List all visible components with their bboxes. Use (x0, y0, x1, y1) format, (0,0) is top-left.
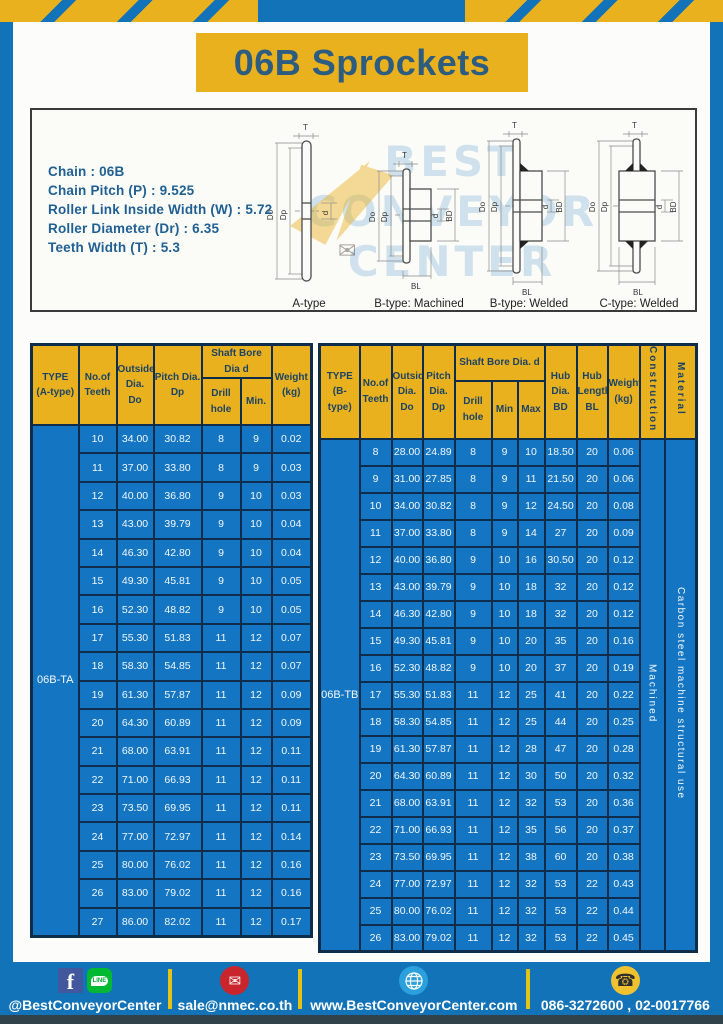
col-header-pitch-dia: Pitch Dia. Dp (154, 345, 202, 426)
c-type-welded-drawing: T Do Dp d BD BL (585, 121, 693, 297)
cell: 32 (518, 898, 545, 925)
col-header-weight: Weight (kg) (608, 345, 640, 439)
spec-line: Roller Diameter (Dr) : 6.35 (48, 219, 272, 238)
cell: 9 (202, 539, 241, 567)
cell: 0.36 (608, 790, 640, 817)
cell: 10 (241, 539, 272, 567)
cell: 11 (455, 709, 492, 736)
cell: 0.16 (608, 628, 640, 655)
cell: 46.30 (117, 539, 154, 567)
cell: 25 (518, 709, 545, 736)
globe-icon (399, 966, 428, 995)
cell: 9 (241, 425, 272, 453)
diagram-b-type-welded: T Do Dp d BD BL B-type: Welded (474, 116, 584, 310)
cell: 0.03 (272, 482, 312, 510)
cell: 44 (545, 709, 577, 736)
cell: 10 (492, 628, 518, 655)
cell: 0.14 (272, 822, 312, 850)
cell: 11 (202, 794, 241, 822)
cell: 60.89 (154, 709, 202, 737)
email-icon: ✉ (220, 966, 249, 995)
cell: 0.28 (608, 736, 640, 763)
cell: 11 (518, 466, 545, 493)
col-header-drill-hole: Drill hole (455, 381, 492, 439)
cell: 21 (360, 790, 392, 817)
cell: 32 (518, 871, 545, 898)
col-header-hub-length: Hub Length BL (577, 345, 608, 439)
cell: 10 (79, 425, 117, 453)
cell: 64.30 (392, 763, 423, 790)
cell: 8 (455, 439, 492, 466)
cell: 21 (79, 737, 117, 765)
cell: 9 (492, 466, 518, 493)
b-type-machined-drawing: T Do Dp d BD BL (365, 121, 473, 297)
cell: 15 (360, 628, 392, 655)
cell: 0.12 (608, 574, 640, 601)
cell: 12 (492, 709, 518, 736)
cell: 20 (518, 655, 545, 682)
cell: 0.19 (608, 655, 640, 682)
page-title: 06B Sprockets (234, 42, 491, 84)
cell: 24 (360, 871, 392, 898)
cell: 72.97 (154, 822, 202, 850)
cell: 11 (202, 709, 241, 737)
cell: 12 (492, 817, 518, 844)
cell: 27 (79, 908, 117, 936)
cell: 20 (79, 709, 117, 737)
cell: 8 (455, 493, 492, 520)
table-b-body: 06B-TB828.0024.89891018.50200.06Machined… (320, 439, 697, 952)
cell: 10 (492, 547, 518, 574)
cell: 0.09 (272, 681, 312, 709)
cell: 77.00 (117, 822, 154, 850)
cell: 20 (577, 844, 608, 871)
col-header-pitch-dia: Pitch Dia. Dp (423, 345, 455, 439)
cell: 45.81 (423, 628, 455, 655)
cell: 13 (79, 510, 117, 538)
cell: 32 (545, 574, 577, 601)
cell: 9 (360, 466, 392, 493)
cell: 27 (545, 520, 577, 547)
cell: 0.05 (272, 595, 312, 623)
type-value-cell: 06B-TB (320, 439, 360, 952)
cell: 0.16 (272, 879, 312, 907)
cell: 10 (241, 510, 272, 538)
phone-numbers: 086-3272600 , 02-0017766 (541, 997, 710, 1013)
svg-text:BD: BD (555, 201, 564, 212)
cell: 9 (202, 567, 241, 595)
cell: 0.08 (608, 493, 640, 520)
cell: 28.00 (392, 439, 423, 466)
cell: 20 (577, 520, 608, 547)
cell: 18 (360, 709, 392, 736)
cell: 80.00 (392, 898, 423, 925)
cell: 35 (518, 817, 545, 844)
cell: 20 (577, 709, 608, 736)
cell: 11 (455, 763, 492, 790)
cell: 46.30 (392, 601, 423, 628)
cell: 11 (455, 736, 492, 763)
diagram-c-type-welded: T Do Dp d BD BL C-type: Welded (584, 116, 694, 310)
cell: 39.79 (423, 574, 455, 601)
cell: 12 (492, 925, 518, 952)
cell: 79.02 (154, 879, 202, 907)
cell: 11 (202, 822, 241, 850)
cell: 57.87 (154, 681, 202, 709)
cell: 22 (577, 925, 608, 952)
top-border-band (0, 0, 723, 22)
cell: 12 (241, 794, 272, 822)
cell: 22 (577, 871, 608, 898)
cell: 30.82 (423, 493, 455, 520)
cell: 72.97 (423, 871, 455, 898)
svg-text:T: T (512, 121, 517, 130)
line-app-icon: LINE (87, 968, 112, 993)
cell: 9 (455, 655, 492, 682)
cell: 55.30 (392, 682, 423, 709)
cell: 20 (577, 790, 608, 817)
cell: 69.95 (154, 794, 202, 822)
col-header-material: Material (665, 345, 697, 439)
cell: 33.80 (154, 453, 202, 481)
cell: 10 (518, 439, 545, 466)
phone-icon: ☎ (611, 966, 640, 995)
cell: 32 (518, 790, 545, 817)
cell: 0.06 (608, 439, 640, 466)
cell: 76.02 (423, 898, 455, 925)
table-a-header: TYPE (A-type) No.of Teeth Outside Dia. D… (32, 345, 312, 426)
svg-text:BL: BL (522, 288, 532, 297)
cell: 33.80 (423, 520, 455, 547)
cell: 0.09 (608, 520, 640, 547)
cell: 9 (202, 510, 241, 538)
cell: 32 (545, 601, 577, 628)
cell: 15 (79, 567, 117, 595)
cell: 11 (202, 681, 241, 709)
cell: 64.30 (117, 709, 154, 737)
cell: 71.00 (392, 817, 423, 844)
cell: 0.04 (272, 539, 312, 567)
cell: 82.02 (154, 908, 202, 936)
b-type-welded-drawing: T Do Dp d BD BL (475, 121, 583, 297)
cell: 12 (241, 652, 272, 680)
cell: 12 (241, 766, 272, 794)
cell: 60.89 (423, 763, 455, 790)
cell: 68.00 (117, 737, 154, 765)
cell: 18 (518, 601, 545, 628)
website-url: www.BestConveyorCenter.com (310, 997, 517, 1013)
cell: 9 (202, 482, 241, 510)
cell: 11 (202, 737, 241, 765)
cell: 48.82 (154, 595, 202, 623)
cell: 34.00 (117, 425, 154, 453)
cell: 73.50 (117, 794, 154, 822)
cell: 71.00 (117, 766, 154, 794)
cell: 16 (518, 547, 545, 574)
col-header-construction: Construction (640, 345, 665, 439)
cell: 22 (577, 898, 608, 925)
social-handle: @BestConveyorCenter (8, 997, 161, 1013)
cell: 11 (202, 766, 241, 794)
cell: 0.11 (272, 737, 312, 765)
cell: 0.16 (272, 851, 312, 879)
cell: 12 (241, 908, 272, 936)
sprocket-table-a: TYPE (A-type) No.of Teeth Outside Dia. D… (30, 343, 313, 938)
cell: 73.50 (392, 844, 423, 871)
cell: 30.82 (154, 425, 202, 453)
cell: 12 (241, 737, 272, 765)
cell: 12 (241, 624, 272, 652)
svg-text:Do: Do (478, 201, 487, 212)
svg-text:Do: Do (368, 211, 377, 222)
diagram-label: C-type: Welded (599, 298, 678, 310)
cell: 58.30 (392, 709, 423, 736)
cell: 53 (545, 925, 577, 952)
cell: 58.30 (117, 652, 154, 680)
cell: 11 (455, 844, 492, 871)
cell: 0.05 (272, 567, 312, 595)
table-b-type: TYPE (B-type) No.of Teeth Outside Dia. D… (318, 343, 698, 953)
cell: 0.45 (608, 925, 640, 952)
chain-specs: Chain : 06BChain Pitch (P) : 9.525Roller… (48, 162, 272, 257)
svg-text:Do: Do (588, 201, 597, 212)
cell: 52.30 (392, 655, 423, 682)
col-header-shaft-bore: Shaft Bore Dia d (202, 345, 272, 379)
cell: 34.00 (392, 493, 423, 520)
cell: 61.30 (392, 736, 423, 763)
cell: 0.12 (608, 547, 640, 574)
cell: 24 (79, 822, 117, 850)
spec-line: Chain Pitch (P) : 9.525 (48, 181, 272, 200)
cell: 20 (577, 763, 608, 790)
cell: 40.00 (117, 482, 154, 510)
cell: 53 (545, 871, 577, 898)
svg-text:d: d (655, 205, 664, 209)
cell: 11 (455, 925, 492, 952)
diagram-panel: ✉ BEST CONVEYOR CENTER Chain : 06BChain … (30, 108, 697, 312)
svg-text:T: T (632, 121, 637, 130)
svg-text:d: d (541, 205, 550, 209)
cell: 52.30 (117, 595, 154, 623)
cell: 83.00 (117, 879, 154, 907)
cell: 11 (202, 851, 241, 879)
table-row: 06B-TB828.0024.89891018.50200.06Machined… (320, 439, 697, 466)
cell: 9 (492, 493, 518, 520)
cell: 13 (360, 574, 392, 601)
col-header-weight: Weight (kg) (272, 345, 312, 426)
construction-value-cell: Machined (640, 439, 665, 952)
cell: 37.00 (117, 453, 154, 481)
cell: 68.00 (392, 790, 423, 817)
cell: 20 (577, 817, 608, 844)
cell: 76.02 (154, 851, 202, 879)
cell: 0.38 (608, 844, 640, 871)
cell: 17 (360, 682, 392, 709)
cell: 0.25 (608, 709, 640, 736)
cell: 42.80 (154, 539, 202, 567)
cell: 23 (360, 844, 392, 871)
cell: 12 (518, 493, 545, 520)
cell: 8 (202, 425, 241, 453)
cell: 83.00 (392, 925, 423, 952)
svg-text:d: d (431, 214, 440, 218)
cell: 0.11 (272, 766, 312, 794)
cell: 27.85 (423, 466, 455, 493)
cell: 0.11 (272, 794, 312, 822)
cell: 9 (455, 547, 492, 574)
cell: 61.30 (117, 681, 154, 709)
cell: 0.07 (272, 624, 312, 652)
cell: 39.79 (154, 510, 202, 538)
cell: 10 (492, 601, 518, 628)
cell: 14 (360, 601, 392, 628)
cell: 43.00 (392, 574, 423, 601)
cell: 12 (241, 681, 272, 709)
cell: 26 (79, 879, 117, 907)
cell: 12 (492, 736, 518, 763)
cell: 38 (518, 844, 545, 871)
col-header-teeth: No.of Teeth (79, 345, 117, 426)
cell: 49.30 (117, 567, 154, 595)
cell: 18 (518, 574, 545, 601)
cell: 26 (360, 925, 392, 952)
cell: 12 (492, 682, 518, 709)
cell: 47 (545, 736, 577, 763)
cell: 20 (577, 439, 608, 466)
cell: 0.32 (608, 763, 640, 790)
sprocket-diagrams: T Do Dp d A-type (254, 116, 694, 310)
cell: 56 (545, 817, 577, 844)
svg-text:Dp: Dp (490, 201, 499, 212)
email-address: sale@nmec.co.th (178, 997, 293, 1013)
type-value-cell: 06B-TA (32, 425, 79, 936)
cell: 8 (455, 466, 492, 493)
cell: 14 (518, 520, 545, 547)
cell: 10 (492, 574, 518, 601)
cell: 22 (79, 766, 117, 794)
cell: 9 (455, 574, 492, 601)
cell: 63.91 (154, 737, 202, 765)
cell: 69.95 (423, 844, 455, 871)
cell: 43.00 (117, 510, 154, 538)
diagram-b-type-machined: T Do Dp d BD BL B-type: Machined (364, 116, 474, 310)
material-value-cell: Carbon steel machine structural use (665, 439, 697, 952)
cell: 18.50 (545, 439, 577, 466)
cell: 14 (79, 539, 117, 567)
diagram-label: A-type (292, 298, 325, 310)
cell: 9 (455, 628, 492, 655)
col-header-min: Min. (241, 378, 272, 425)
svg-text:BD: BD (669, 201, 678, 212)
table-a-body: 06B-TA1034.0030.82890.021137.0033.80890.… (32, 425, 312, 936)
cell: 12 (241, 851, 272, 879)
cell: 25 (79, 851, 117, 879)
cell: 12 (492, 763, 518, 790)
cell: 12 (79, 482, 117, 510)
col-header-drill-hole: Drill hole (202, 378, 241, 425)
cell: 0.43 (608, 871, 640, 898)
cell: 0.03 (272, 453, 312, 481)
cell: 20 (577, 682, 608, 709)
cell: 11 (455, 817, 492, 844)
svg-text:T: T (303, 123, 308, 132)
bottom-edge-strip (0, 1015, 723, 1024)
cell: 35 (545, 628, 577, 655)
cell: 18 (79, 652, 117, 680)
svg-text:T: T (402, 151, 407, 160)
title-banner: 06B Sprockets (196, 33, 528, 92)
cell: 10 (241, 595, 272, 623)
cell: 0.06 (608, 466, 640, 493)
cell: 11 (79, 453, 117, 481)
cell: 53 (545, 898, 577, 925)
col-header-outside-dia: Outside Dia. Do (117, 345, 154, 426)
cell: 8 (202, 453, 241, 481)
cell: 21.50 (545, 466, 577, 493)
svg-text:BL: BL (633, 288, 643, 297)
spec-line: Roller Link Inside Width (W) : 5.72 (48, 200, 272, 219)
cell: 63.91 (423, 790, 455, 817)
cell: 20 (577, 574, 608, 601)
cell: 66.93 (154, 766, 202, 794)
cell: 51.83 (154, 624, 202, 652)
cell: 53 (545, 790, 577, 817)
cell: 0.17 (272, 908, 312, 936)
cell: 8 (455, 520, 492, 547)
cell: 30.50 (545, 547, 577, 574)
cell: 28 (518, 736, 545, 763)
cell: 16 (360, 655, 392, 682)
facebook-icon: f (58, 968, 83, 993)
svg-text:BD: BD (445, 210, 454, 221)
diagram-label: B-type: Welded (490, 298, 568, 310)
cell: 0.02 (272, 425, 312, 453)
cell: 11 (202, 652, 241, 680)
cell: 55.30 (117, 624, 154, 652)
cell: 12 (241, 709, 272, 737)
cell: 20 (577, 655, 608, 682)
cell: 11 (202, 879, 241, 907)
cell: 0.44 (608, 898, 640, 925)
catalog-page: 06B Sprockets ✉ BEST CONVEYOR CENTER Cha… (0, 0, 723, 1024)
col-header-shaft-bore: Shaft Bore Dia. d (455, 345, 545, 382)
cell: 12 (492, 790, 518, 817)
table-a-type: TYPE (A-type) No.of Teeth Outside Dia. D… (30, 343, 313, 938)
cell: 0.07 (272, 652, 312, 680)
cell: 0.04 (272, 510, 312, 538)
cell: 19 (79, 681, 117, 709)
cell: 11 (202, 908, 241, 936)
cell: 36.80 (154, 482, 202, 510)
table-row: 06B-TA1034.0030.82890.02 (32, 425, 312, 453)
cell: 10 (241, 567, 272, 595)
cell: 50 (545, 763, 577, 790)
cell: 8 (360, 439, 392, 466)
cell: 9 (202, 595, 241, 623)
cell: 66.93 (423, 817, 455, 844)
cell: 79.02 (423, 925, 455, 952)
cell: 41 (545, 682, 577, 709)
cell: 9 (241, 453, 272, 481)
cell: 0.22 (608, 682, 640, 709)
cell: 12 (492, 871, 518, 898)
cell: 24.50 (545, 493, 577, 520)
sprocket-table-b: TYPE (B-type) No.of Teeth Outside Dia. D… (318, 343, 698, 953)
cell: 9 (455, 601, 492, 628)
col-header-max: Max (518, 381, 545, 439)
cell: 12 (492, 844, 518, 871)
cell: 57.87 (423, 736, 455, 763)
